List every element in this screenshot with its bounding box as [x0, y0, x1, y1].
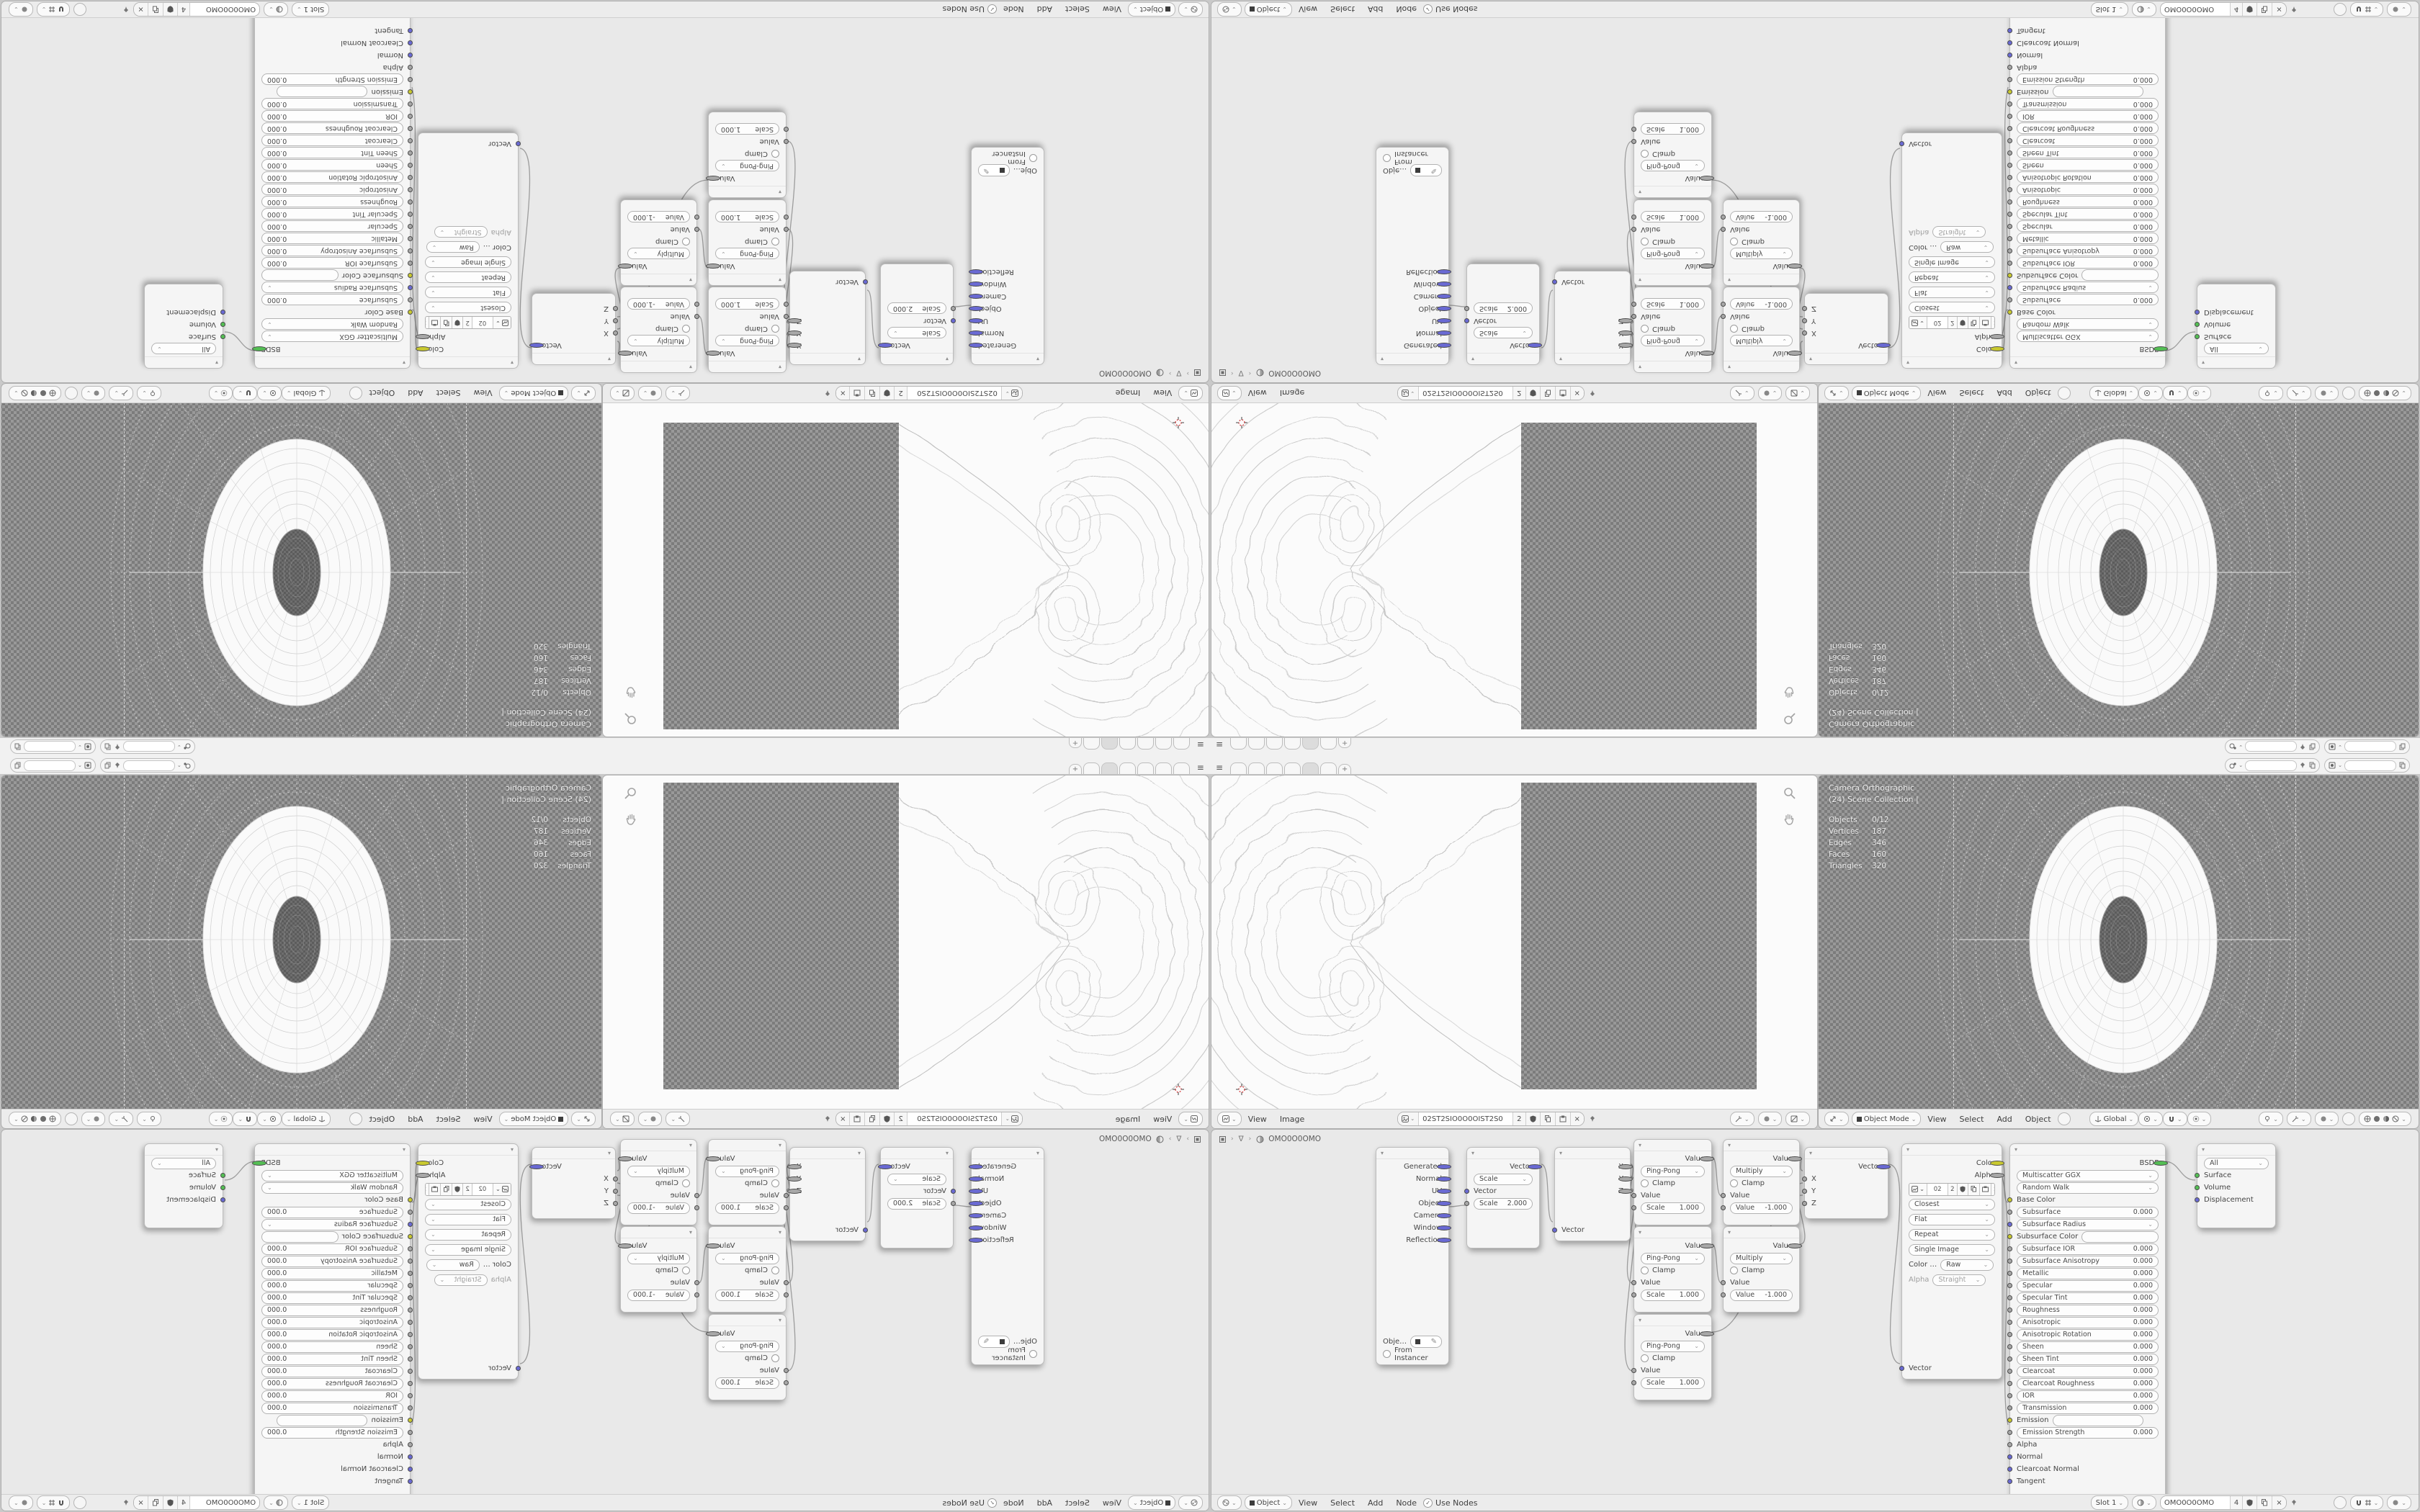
fake-user-shield-icon[interactable] [1958, 318, 1968, 329]
scale-value-field[interactable]: Scale1.000 [715, 1377, 779, 1389]
unlink-icon[interactable]: × [1991, 1184, 1995, 1195]
copy-icon[interactable] [2257, 1496, 2272, 1509]
clamp-checkbox[interactable] [1730, 1266, 1738, 1274]
copy-icon[interactable] [148, 3, 163, 16]
copy-icon[interactable] [864, 387, 879, 400]
pack-icon[interactable] [429, 1184, 440, 1195]
node-math-multiply[interactable]: ▾ Value Multiply⌄ Clamp Value Value-1.00… [1723, 287, 1800, 373]
value-field[interactable]: Subsurface Anisotropy0.000 [2017, 246, 2159, 257]
value-field[interactable]: Anisotropic0.000 [261, 184, 403, 196]
collapse-chevron[interactable]: ▾ [709, 186, 786, 197]
clamp-checkbox[interactable] [771, 1266, 779, 1274]
value-field[interactable]: Sheen Tint0.000 [261, 148, 403, 159]
value-field[interactable]: Clearcoat Roughness0.000 [261, 1378, 403, 1390]
image-name[interactable]: 02 [1927, 318, 1948, 329]
collapse-chevron[interactable]: ▾ [418, 356, 518, 368]
collapse-chevron[interactable]: ▾ [709, 1140, 786, 1151]
value-field[interactable]: Value-1.000 [1730, 1202, 1793, 1214]
shader-editor[interactable]: › ∇ › OMO0O0OMO ▾ Generated Norm [1, 1130, 1209, 1511]
collapse-chevron[interactable]: ▾ [1805, 353, 1888, 364]
pan-hand-gizmo-icon[interactable] [1783, 813, 1796, 825]
value-field[interactable]: Specular Tint0.000 [261, 209, 403, 220]
pack-icon[interactable] [849, 387, 864, 400]
value-field[interactable]: Specular Tint0.000 [2017, 1292, 2159, 1304]
colorspace-dropdown[interactable]: Raw⌄ [1940, 1259, 1994, 1271]
copy-icon[interactable] [2398, 743, 2406, 750]
image-users-count[interactable]: 2 [1513, 387, 1525, 400]
source-dropdown[interactable]: Single Image⌄ [425, 1244, 511, 1256]
visibility-button[interactable]: ⌄ [137, 386, 161, 400]
menu-object[interactable]: Object [2025, 389, 2051, 398]
overlays-button[interactable]: ⌄ [9, 2, 33, 17]
editor-type-button[interactable]: ⌄ [1178, 1112, 1203, 1126]
collapse-chevron[interactable]: ▾ [1634, 274, 1711, 285]
node-vector-math-scale[interactable]: ▾ Vector Scale⌄ Vector Scale2.000 [880, 264, 954, 365]
material-name-field[interactable]: OMO0O0OMO [189, 1496, 259, 1509]
workspace-tab[interactable] [1173, 762, 1190, 774]
collapse-chevron[interactable]: ▾ [790, 1148, 865, 1159]
menu-view[interactable]: View [1927, 389, 1946, 398]
material-users-count[interactable]: 4 [177, 1496, 189, 1509]
source-dropdown[interactable]: Single Image⌄ [1909, 1244, 1995, 1256]
clamp-checkbox[interactable] [682, 238, 690, 246]
value-field[interactable]: Specular0.000 [2017, 1280, 2159, 1292]
operation-dropdown[interactable]: Multiply⌄ [627, 248, 690, 260]
node-image-texture[interactable]: ▾ Color Alpha ⌄ 02 2 × Closest⌄ Flat⌄ Re… [418, 132, 519, 369]
emission-color-swatch[interactable] [2053, 1415, 2143, 1426]
collapse-chevron[interactable]: ▾ [1376, 353, 1448, 364]
value-field[interactable]: Value-1.000 [1730, 299, 1793, 310]
collapse-chevron[interactable]: ▾ [532, 353, 615, 364]
workspace-tab[interactable] [1119, 738, 1136, 750]
object-picker-field[interactable]: ✎ [978, 164, 1010, 176]
subsurface-color-swatch[interactable] [261, 270, 339, 282]
overlays-button[interactable]: ⌄ [81, 386, 106, 400]
visibility-button[interactable]: ⌄ [2259, 386, 2283, 400]
viewlayer-name-field[interactable] [2344, 742, 2396, 752]
unlink-icon[interactable]: × [2272, 1496, 2285, 1509]
menu-icon[interactable]: ≡ [1197, 741, 1204, 748]
value-field[interactable]: Metallic0.000 [2017, 233, 2159, 245]
snap-button[interactable]: ⌄ [233, 1112, 257, 1126]
source-dropdown[interactable]: Single Image⌄ [425, 257, 511, 269]
shader-type-dropdown[interactable]: Object⌄ [1245, 1495, 1292, 1510]
image-users-count[interactable]: 2 [894, 387, 906, 400]
workspace-tab[interactable] [1173, 738, 1190, 750]
node-math-ping-pong[interactable]: ▾ Value Ping-Pong⌄ Clamp Value Scale1.00… [708, 1226, 786, 1313]
menu-view[interactable]: View [1248, 389, 1267, 398]
menu-select[interactable]: Select [1330, 1498, 1355, 1508]
copy-icon[interactable] [148, 1496, 163, 1509]
value-field[interactable]: Specular0.000 [2017, 221, 2159, 233]
collapse-chevron[interactable]: ▾ [1634, 1315, 1711, 1326]
image-name-field[interactable]: 02ST2SIO0O0OIST2S0 [1419, 1112, 1513, 1125]
mode-selector[interactable]: Object Mode⌄ [1852, 1112, 1922, 1126]
display-channels-button[interactable]: ⌄ [610, 386, 635, 400]
pivot-point-button[interactable]: ⌄ [2187, 1112, 2212, 1126]
scale-value-field[interactable]: Scale1.000 [715, 299, 779, 310]
fake-user-shield-icon[interactable] [452, 318, 462, 329]
scene-name-field[interactable] [2245, 742, 2297, 752]
scale-value-field[interactable]: Scale1.000 [715, 1202, 779, 1214]
collapse-chevron[interactable]: ▾ [2197, 1144, 2275, 1156]
collapse-chevron[interactable]: ▾ [790, 353, 865, 364]
value-field[interactable]: Metallic0.000 [2017, 1268, 2159, 1279]
proportional-edit-button[interactable]: ⌄ [2138, 1112, 2163, 1126]
material-name-field[interactable]: OMO0O0OMO [2161, 3, 2231, 16]
image-name-field[interactable]: 02ST2SIO0O0OIST2S0 [907, 1112, 1001, 1125]
browse-image-icon[interactable]: ⌄ [493, 318, 511, 329]
operation-dropdown[interactable]: Multiply⌄ [1730, 1253, 1793, 1264]
subsurface-field[interactable]: Subsurface0.000 [2017, 294, 2159, 306]
value-field[interactable]: Anisotropic Rotation0.000 [2017, 172, 2159, 184]
pin-icon[interactable] [122, 1499, 130, 1506]
target-dropdown[interactable]: All⌄ [2204, 343, 2269, 355]
viewport-3d[interactable]: Camera Orthographic (24) Scene Collectio… [1, 384, 601, 737]
collapse-chevron[interactable]: ▾ [145, 356, 223, 368]
browse-material-button[interactable]: ⌄ [264, 1495, 288, 1510]
from-instancer-checkbox[interactable] [1383, 1350, 1391, 1358]
pack-icon[interactable] [1980, 318, 1991, 329]
pin-icon[interactable] [1589, 1115, 1596, 1122]
node-separate-xyz[interactable]: ▾ X Y Z Vector [789, 1147, 866, 1241]
overlays-button[interactable]: ⌄ [2315, 1112, 2339, 1126]
menu-view[interactable]: View [1153, 1115, 1172, 1124]
viewport-3d[interactable]: Camera Orthographic (24) Scene Collectio… [1819, 775, 2419, 1128]
browse-image-icon[interactable]: ⌄ [1909, 1184, 1927, 1195]
snapping-toggle[interactable] [73, 1496, 86, 1509]
image-users-count[interactable]: 2 [1948, 1184, 1957, 1195]
collapse-chevron[interactable]: ▾ [1724, 1227, 1799, 1238]
menu-select[interactable]: Select [1960, 1115, 1984, 1124]
subsurface-radius-dropdown[interactable]: Subsurface Radius⌄ [261, 1219, 403, 1230]
viewlayer-selector[interactable]: ⌄ [2324, 758, 2410, 773]
gizmos-button[interactable]: ⌄ [665, 386, 690, 400]
copy-icon[interactable] [1541, 387, 1556, 400]
browse-material-button[interactable]: ⌄ [2132, 2, 2156, 17]
from-instancer-checkbox[interactable] [1029, 154, 1037, 162]
node-image-texture[interactable]: ▾ Color Alpha ⌄ 02 2 × Closest⌄ Flat⌄ Re… [1901, 1143, 2002, 1380]
collapse-chevron[interactable]: ▾ [621, 274, 696, 285]
value-field[interactable]: Clearcoat Roughness0.000 [261, 123, 403, 135]
value-field[interactable]: IOR0.000 [261, 111, 403, 122]
menu-object[interactable]: Object [369, 389, 395, 398]
snapping-toggle[interactable] [2334, 1496, 2347, 1509]
menu-add[interactable]: Add [1996, 1115, 2012, 1124]
node-math-multiply[interactable]: ▾ Value Multiply⌄ Clamp Value Value-1.00… [620, 199, 697, 286]
image-users-count[interactable]: 2 [1513, 1112, 1525, 1125]
transform-orientation[interactable]: Global⌄ [282, 386, 331, 400]
value-field[interactable]: Clearcoat0.000 [2017, 1366, 2159, 1377]
copy-icon[interactable] [1968, 318, 1980, 329]
operation-dropdown[interactable]: Ping-Pong⌄ [1641, 248, 1705, 260]
node-math-multiply[interactable]: ▾ Value Multiply⌄ Clamp Value Value-1.00… [620, 287, 697, 373]
snapping-toggle[interactable] [2334, 3, 2347, 16]
slot-dropdown[interactable]: Slot 1⌄ [2091, 2, 2128, 17]
value-field[interactable]: Roughness0.000 [261, 197, 403, 208]
snap-button[interactable]: ⌄ [233, 386, 257, 400]
menu-view[interactable]: View [1153, 389, 1172, 398]
workspace-tab[interactable] [1230, 738, 1247, 750]
value-field[interactable]: Roughness0.000 [261, 1305, 403, 1316]
pack-icon[interactable] [1556, 1112, 1571, 1125]
operation-dropdown[interactable]: Ping-Pong⌄ [1641, 1166, 1705, 1177]
value-field[interactable]: IOR0.000 [2017, 1390, 2159, 1402]
add-workspace-button[interactable]: + [1069, 738, 1082, 748]
extension-dropdown[interactable]: Repeat⌄ [425, 1229, 511, 1241]
zoom-gizmo-icon[interactable] [1783, 787, 1796, 799]
workspace-tab[interactable] [1320, 762, 1337, 774]
pivot-point-button[interactable]: ⌄ [2187, 386, 2212, 400]
clamp-checkbox[interactable] [682, 1266, 690, 1274]
subsurface-field[interactable]: Subsurface0.000 [261, 294, 403, 306]
slot-dropdown[interactable]: Slot 1⌄ [2091, 1495, 2128, 1510]
shader-type-dropdown[interactable]: Object⌄ [1128, 1495, 1175, 1510]
material-name-field[interactable]: OMO0O0OMO [2161, 1496, 2231, 1509]
node-separate-xyz[interactable]: ▾ X Y Z Vector [1554, 1147, 1631, 1241]
collapse-chevron[interactable]: ▾ [1634, 361, 1711, 372]
pin-icon[interactable] [824, 390, 831, 397]
emission-strength-field[interactable]: Emission Strength0.000 [261, 74, 403, 86]
collapse-chevron[interactable]: ▾ [2010, 1144, 2165, 1156]
image-users-count[interactable]: 2 [462, 318, 471, 329]
menu-select[interactable]: Select [436, 389, 461, 398]
node-math-ping-pong[interactable]: ▾ Value Ping-Pong⌄ Clamp Value Scale1.00… [708, 199, 786, 286]
node-principled-bsdf[interactable]: ▾ BSDF Multiscatter GGX⌄ Random Walk⌄ Ba… [254, 10, 411, 369]
tool-settings-button[interactable] [2058, 387, 2071, 400]
pin-icon[interactable] [122, 6, 130, 13]
menu-icon[interactable]: ≡ [1216, 741, 1223, 748]
node-material-output[interactable]: ▾ All⌄ Surface Volume Displacement [144, 284, 223, 369]
tool-settings-button[interactable] [2058, 1112, 2071, 1125]
collapse-chevron[interactable]: ▾ [2010, 356, 2165, 368]
shader-editor[interactable]: › ∇ › OMO0O0OMO ▾ Generated Norm [1211, 1, 2419, 382]
extension-dropdown[interactable]: Repeat⌄ [1909, 272, 1995, 284]
subsurface-color-swatch[interactable] [2081, 270, 2159, 282]
fake-user-shield-icon[interactable] [2243, 1496, 2257, 1509]
extension-dropdown[interactable]: Repeat⌄ [1909, 1229, 1995, 1241]
value-field[interactable]: Subsurface IOR0.000 [2017, 258, 2159, 269]
mode-selector[interactable]: Object Mode⌄ [499, 386, 569, 400]
node-math-multiply[interactable]: ▾ Value Multiply⌄ Clamp Value Value-1.00… [620, 1226, 697, 1313]
menu-icon[interactable]: ≡ [1197, 764, 1204, 771]
collapse-chevron[interactable]: ▾ [145, 1144, 223, 1156]
scene-name-field[interactable] [2245, 760, 2297, 771]
scene-name-field[interactable] [123, 760, 175, 771]
editor-type-button[interactable]: ⌄ [1178, 386, 1203, 400]
node-math-ping-pong[interactable]: ▾ Value Ping-Pong⌄ Clamp Value Scale1.00… [1633, 287, 1712, 373]
menu-icon[interactable]: ≡ [1216, 764, 1223, 771]
target-dropdown[interactable]: All⌄ [2204, 1158, 2269, 1169]
use-nodes-checkbox[interactable]: ✓ [987, 1498, 997, 1508]
projection-dropdown[interactable]: Flat⌄ [1909, 287, 1995, 299]
emission-strength-field[interactable]: Emission Strength0.000 [2017, 1427, 2159, 1439]
viewlayer-name-field[interactable] [24, 742, 76, 752]
distribution-dropdown[interactable]: Multiscatter GGX⌄ [2017, 1170, 2159, 1182]
xray-toggle[interactable] [2342, 1112, 2355, 1125]
alpha-mode-dropdown[interactable]: Straight⌄ [1932, 227, 1986, 238]
collapse-chevron[interactable]: ▾ [1555, 1148, 1630, 1159]
overlays-button[interactable]: ⌄ [1758, 1112, 1783, 1126]
editor-type-button[interactable]: ⌄ [1178, 2, 1203, 17]
clamp-checkbox[interactable] [1730, 238, 1738, 246]
value-field[interactable]: Clearcoat Roughness0.000 [2017, 1378, 2159, 1390]
node-combine-xyz[interactable]: ▾ Vector X Y Z [532, 1147, 616, 1219]
collapse-chevron[interactable]: ▾ [881, 1148, 953, 1159]
value-field[interactable]: Anisotropic Rotation0.000 [261, 172, 403, 184]
subsurface-radius-dropdown[interactable]: Subsurface Radius⌄ [2017, 282, 2159, 294]
node-math-ping-pong[interactable]: ▾ Value Ping-Pong⌄ Clamp Value Scale1.00… [708, 1139, 786, 1225]
scale-value-field[interactable]: Scale1.000 [1641, 1290, 1705, 1301]
colorspace-dropdown[interactable]: Raw⌄ [1940, 242, 1994, 253]
pin-icon[interactable] [824, 1115, 831, 1122]
overlays-button[interactable]: ⌄ [638, 386, 663, 400]
menu-image[interactable]: Image [1116, 1115, 1140, 1124]
workspace-tab[interactable] [1266, 762, 1283, 774]
operation-dropdown[interactable]: Scale⌄ [1474, 1174, 1533, 1185]
emission-color-swatch[interactable] [2053, 86, 2143, 98]
emission-color-swatch[interactable] [277, 86, 368, 98]
unlink-icon[interactable]: × [836, 387, 849, 400]
subsurface-color-swatch[interactable] [2081, 1231, 2159, 1243]
collapse-chevron[interactable]: ▾ [1902, 1144, 2002, 1156]
editor-type-button[interactable]: ⌄ [1824, 386, 1849, 400]
subsurface-color-swatch[interactable] [261, 1231, 339, 1243]
shader-type-dropdown[interactable]: Object⌄ [1245, 2, 1292, 17]
operation-dropdown[interactable]: Ping-Pong⌄ [715, 1253, 779, 1264]
value-field[interactable]: IOR0.000 [2017, 111, 2159, 122]
scale-value-field[interactable]: Scale1.000 [1641, 299, 1705, 310]
viewlayer-selector[interactable]: ⌄ [10, 739, 96, 754]
browse-image-icon[interactable]: ⌄ [1398, 1112, 1419, 1125]
value-field[interactable]: Subsurface Anisotropy0.000 [2017, 1256, 2159, 1267]
value-field[interactable]: Anisotropic Rotation0.000 [261, 1329, 403, 1341]
node-math-multiply[interactable]: ▾ Value Multiply⌄ Clamp Value Value-1.00… [1723, 199, 1800, 286]
menu-view[interactable]: View [1299, 5, 1317, 14]
pack-icon[interactable] [1980, 1184, 1991, 1195]
operation-dropdown[interactable]: Ping-Pong⌄ [1641, 336, 1705, 347]
node-math-ping-pong[interactable]: ▾ Value Ping-Pong⌄ Clamp Value Scale1.00… [1633, 1226, 1712, 1313]
visibility-button[interactable]: ⌄ [137, 1112, 161, 1126]
collapse-chevron[interactable]: ▾ [2197, 356, 2275, 368]
value-field[interactable]: Anisotropic0.000 [2017, 1317, 2159, 1328]
value-field[interactable]: Anisotropic Rotation0.000 [2017, 1329, 2159, 1341]
menu-node[interactable]: Node [1396, 1498, 1417, 1508]
editor-type-button[interactable]: ⌄ [571, 1112, 596, 1126]
collapse-chevron[interactable]: ▾ [972, 353, 1044, 364]
emission-strength-field[interactable]: Emission Strength0.000 [261, 1427, 403, 1439]
interpolation-dropdown[interactable]: Closest⌄ [1909, 302, 1995, 314]
value-field[interactable]: Sheen Tint0.000 [2017, 1354, 2159, 1365]
zoom-gizmo-icon[interactable] [624, 713, 637, 725]
image-users-count[interactable]: 2 [894, 1112, 906, 1125]
collapse-chevron[interactable]: ▾ [881, 353, 953, 364]
browse-image-icon[interactable]: ⌄ [1398, 387, 1419, 400]
operation-dropdown[interactable]: Multiply⌄ [627, 1166, 690, 1177]
scale-value-field[interactable]: Scale1.000 [1641, 124, 1705, 135]
proportional-edit-button[interactable]: ⌄ [257, 386, 282, 400]
unlink-icon[interactable]: × [1991, 318, 1995, 329]
node-principled-bsdf[interactable]: ▾ BSDF Multiscatter GGX⌄ Random Walk⌄ Ba… [2009, 10, 2166, 369]
value-field[interactable]: Sheen Tint0.000 [2017, 148, 2159, 159]
object-picker-field[interactable]: ✎ [1410, 164, 1442, 176]
mode-selector[interactable]: Object Mode⌄ [1852, 386, 1922, 400]
collapse-chevron[interactable]: ▾ [1805, 1148, 1888, 1159]
clamp-checkbox[interactable] [1641, 238, 1649, 246]
node-material-output[interactable]: ▾ All⌄ Surface Volume Displacement [2197, 284, 2276, 369]
node-texture-coordinate[interactable]: ▾ Generated Normal UV Object Camera Wind… [971, 1147, 1044, 1365]
proportional-edit-button[interactable]: ⌄ [2138, 386, 2163, 400]
value-field[interactable]: Value-1.000 [627, 1290, 690, 1301]
image-name[interactable]: 02 [472, 318, 493, 329]
overlays-button[interactable]: ⌄ [638, 1112, 663, 1126]
collapse-chevron[interactable]: ▾ [709, 1315, 786, 1326]
viewport-3d[interactable]: Camera Orthographic (24) Scene Collectio… [1819, 384, 2419, 737]
value-field[interactable]: Specular Tint0.000 [2017, 209, 2159, 220]
projection-dropdown[interactable]: Flat⌄ [425, 287, 511, 299]
value-field[interactable]: Roughness0.000 [2017, 1305, 2159, 1316]
menu-add[interactable]: Add [1037, 1498, 1052, 1508]
operation-dropdown[interactable]: Ping-Pong⌄ [1641, 161, 1705, 172]
value-field[interactable]: Sheen Tint0.000 [261, 1354, 403, 1365]
menu-object[interactable]: Object [369, 1115, 395, 1124]
value-field[interactable]: Anisotropic0.000 [2017, 184, 2159, 196]
menu-select[interactable]: Select [1960, 389, 1984, 398]
menu-image[interactable]: Image [1280, 1115, 1304, 1124]
collapse-chevron[interactable]: ▾ [418, 1144, 518, 1156]
node-combine-xyz[interactable]: ▾ Vector X Y Z [1804, 1147, 1888, 1219]
collapse-chevron[interactable]: ▾ [709, 361, 786, 372]
browse-image-icon[interactable]: ⌄ [1909, 318, 1927, 329]
fake-user-shield-icon[interactable] [163, 3, 177, 16]
scale-value-field[interactable]: Scale1.000 [715, 212, 779, 223]
material-users-count[interactable]: 4 [177, 3, 189, 16]
menu-node[interactable]: Node [1003, 1498, 1024, 1508]
copy-icon[interactable] [2308, 743, 2316, 750]
value-field[interactable]: Sheen0.000 [2017, 160, 2159, 171]
operation-dropdown[interactable]: Multiply⌄ [627, 336, 690, 347]
node-principled-bsdf[interactable]: ▾ BSDF Multiscatter GGX⌄ Random Walk⌄ Ba… [254, 1143, 411, 1502]
shader-editor[interactable]: › ∇ › OMO0O0OMO ▾ Generated Norm [1, 1, 1209, 382]
tool-settings-button[interactable] [349, 387, 362, 400]
material-users-count[interactable]: 4 [2231, 3, 2243, 16]
pin-icon[interactable] [2290, 1499, 2298, 1506]
menu-view[interactable]: View [1299, 1498, 1317, 1508]
menu-add[interactable]: Add [408, 1115, 423, 1124]
collapse-chevron[interactable]: ▾ [1634, 1227, 1711, 1238]
projection-dropdown[interactable]: Flat⌄ [1909, 1214, 1995, 1225]
copy-icon[interactable] [1968, 1184, 1980, 1195]
pan-hand-gizmo-icon[interactable] [1783, 687, 1796, 699]
fake-user-shield-icon[interactable] [1526, 387, 1541, 400]
menu-select[interactable]: Select [1065, 1498, 1090, 1508]
scene-name-field[interactable] [123, 742, 175, 752]
node-material-output[interactable]: ▾ All⌄ Surface Volume Displacement [2197, 1143, 2276, 1228]
workspace-tab[interactable] [1083, 762, 1100, 774]
pin-icon[interactable] [114, 743, 121, 750]
operation-dropdown[interactable]: Ping-Pong⌄ [715, 1166, 779, 1177]
viewlayer-selector[interactable]: ⌄ [2324, 739, 2410, 754]
collapse-chevron[interactable]: ▾ [1634, 186, 1711, 197]
workspace-tab-active[interactable] [1101, 762, 1118, 774]
node-combine-xyz[interactable]: ▾ Vector X Y Z [1804, 293, 1888, 365]
unlink-icon[interactable]: × [1571, 1112, 1584, 1125]
overlays-button[interactable]: ⌄ [2387, 1495, 2411, 1510]
display-channels-button[interactable]: ⌄ [1785, 386, 1810, 400]
value-field[interactable]: Anisotropic0.000 [261, 1317, 403, 1328]
proportional-edit-button[interactable]: ⌄ [257, 1112, 282, 1126]
node-math-multiply[interactable]: ▾ Value Multiply⌄ Clamp Value Value-1.00… [1723, 1139, 1800, 1225]
